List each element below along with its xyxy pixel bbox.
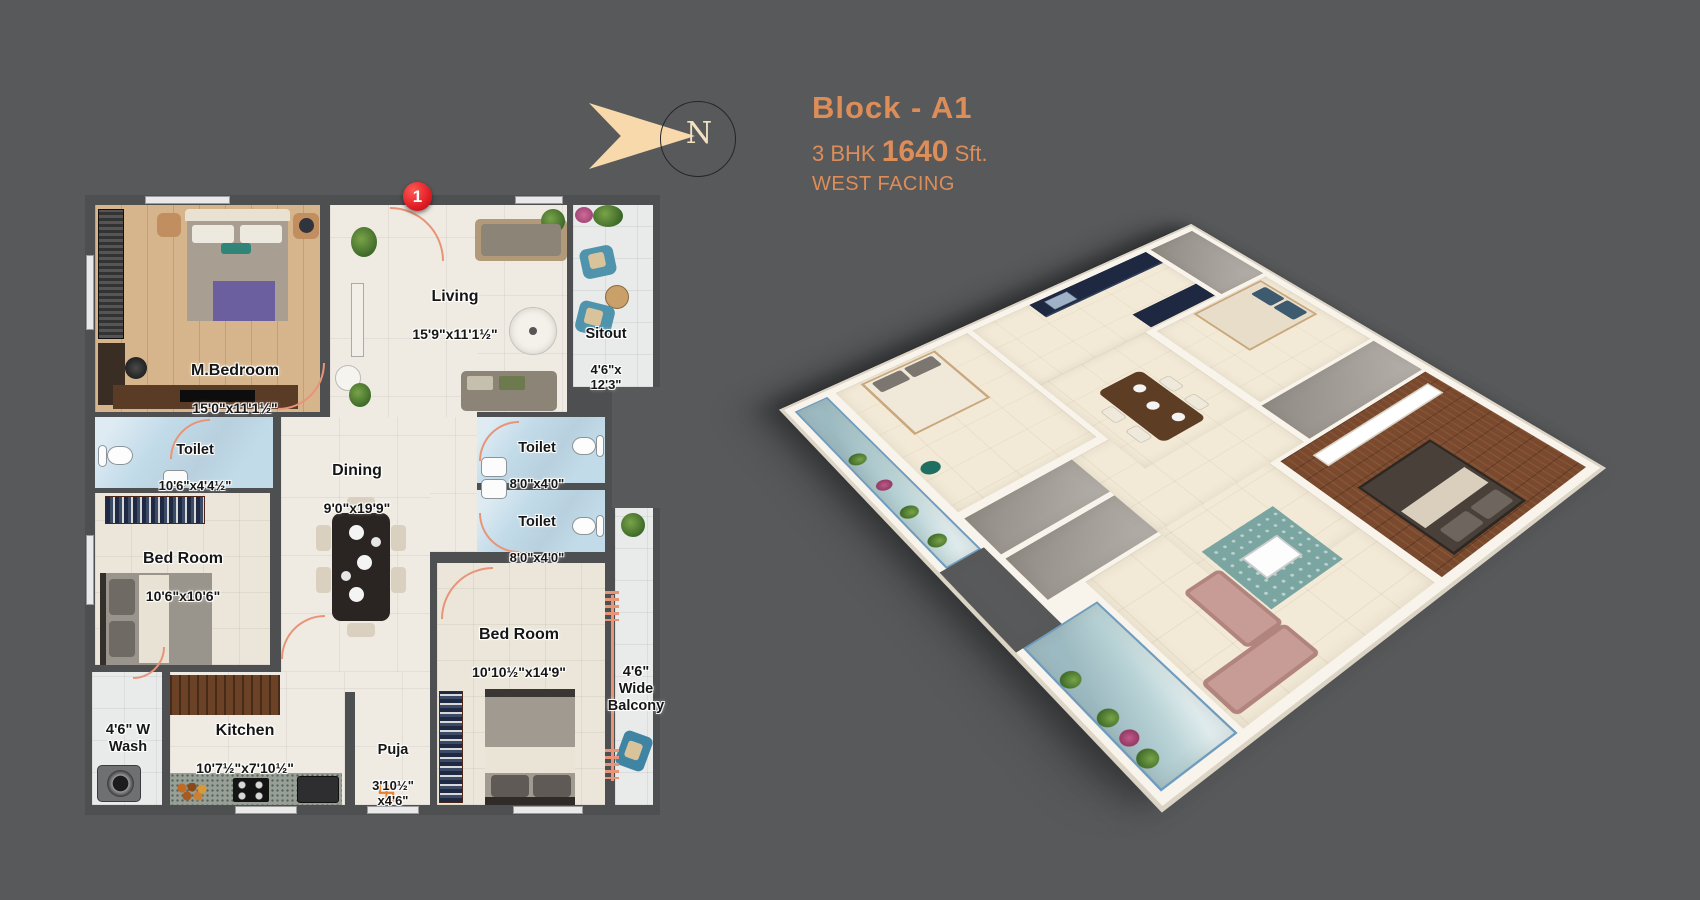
pillow-icon <box>221 243 251 254</box>
window-icon <box>86 535 94 605</box>
iso-apartment <box>784 226 1600 806</box>
plant-icon <box>593 205 623 227</box>
window-icon <box>515 196 563 204</box>
plant-icon <box>351 227 377 257</box>
plate-icon <box>341 571 351 581</box>
floorplan-brochure: { "header": { "block": "Block - A1", "sp… <box>0 0 1700 900</box>
wc-icon <box>572 437 596 455</box>
lamp-icon <box>299 218 314 233</box>
window-icon <box>145 196 230 204</box>
plate-icon <box>349 587 364 602</box>
dining-chair-icon <box>316 567 331 593</box>
dining-chair-icon <box>391 525 406 551</box>
sofa-cushion-icon <box>481 224 561 256</box>
pillow-icon <box>491 775 529 797</box>
plant-icon <box>621 513 645 537</box>
pillow-icon <box>533 775 571 797</box>
bed-headboard-icon <box>185 209 290 221</box>
pillow-icon <box>192 225 234 243</box>
pillow-icon <box>499 376 525 390</box>
puja-wall <box>345 692 355 805</box>
shoe-bench-icon <box>351 283 364 357</box>
chair-icon <box>125 357 147 379</box>
kitchen-sink-icon <box>297 776 339 803</box>
pillow-icon <box>467 376 493 390</box>
floor-plan-2d: 卐 M.Bedroom 15'0"x11'1½" Living 15'9"x11… <box>85 195 660 815</box>
floor-plan-3d <box>893 128 1468 748</box>
wardrobe-icon <box>439 691 463 803</box>
wc-tank-icon <box>596 435 604 457</box>
wc-tank-icon <box>596 515 604 537</box>
bed-headboard-icon <box>485 797 575 805</box>
window-icon <box>86 255 94 330</box>
block-title: Block - A1 <box>812 92 988 123</box>
window-icon <box>235 806 297 814</box>
sliding-door-grill-icon <box>605 749 619 779</box>
table-decor-icon <box>529 327 537 335</box>
washbasin-icon <box>481 479 507 499</box>
label-toilet-master: Toilet 10'6"x4'4½" <box>159 423 232 512</box>
label-sitout: Sitout 4'6"x 12'3" <box>585 307 626 411</box>
plate-icon <box>371 537 381 547</box>
wc-tank-icon <box>98 445 107 467</box>
plate-icon <box>357 555 372 570</box>
wc-icon <box>107 446 133 465</box>
wc-icon <box>572 517 596 535</box>
label-master-bedroom: M.Bedroom 15'0"x11'1½" <box>191 343 279 435</box>
pillow-icon <box>109 579 135 615</box>
label-puja: Puja 3'10½" x4'6" <box>372 723 414 827</box>
label-bedroom-1: Bed Room 10'6"x10'6" <box>143 531 223 623</box>
label-balcony: 4'6" Wide Balcony <box>608 645 664 734</box>
bed-throw-icon <box>213 281 275 321</box>
label-toilet-2: Toilet 8'0"x4'0" <box>510 495 565 584</box>
dining-chair-icon <box>391 567 406 593</box>
wardrobe-icon <box>98 209 124 339</box>
pillow-icon <box>109 621 135 657</box>
flower-pot-icon <box>575 207 593 223</box>
label-kitchen: Kitchen 10'7½"x7'10½" <box>196 703 294 795</box>
dining-chair-icon <box>347 623 375 637</box>
pillow-icon <box>240 225 282 243</box>
bed-headboard-icon <box>100 573 106 665</box>
label-living: Living 15'9"x11'1½" <box>412 269 497 361</box>
sliding-door-grill-icon <box>605 591 619 621</box>
compass-north-label: N <box>676 116 722 151</box>
label-dining: Dining 9'0"x19'9" <box>324 443 391 535</box>
nightstand-icon <box>157 213 181 237</box>
window-icon <box>513 806 583 814</box>
entrance-number-badge: 1 <box>403 182 432 211</box>
bed-sheet-icon <box>485 747 575 773</box>
plant-icon <box>349 383 371 407</box>
label-wash: 4'6" W Wash <box>106 703 150 775</box>
label-bedroom-2: Bed Room 10'10½"x14'9" <box>472 607 566 699</box>
